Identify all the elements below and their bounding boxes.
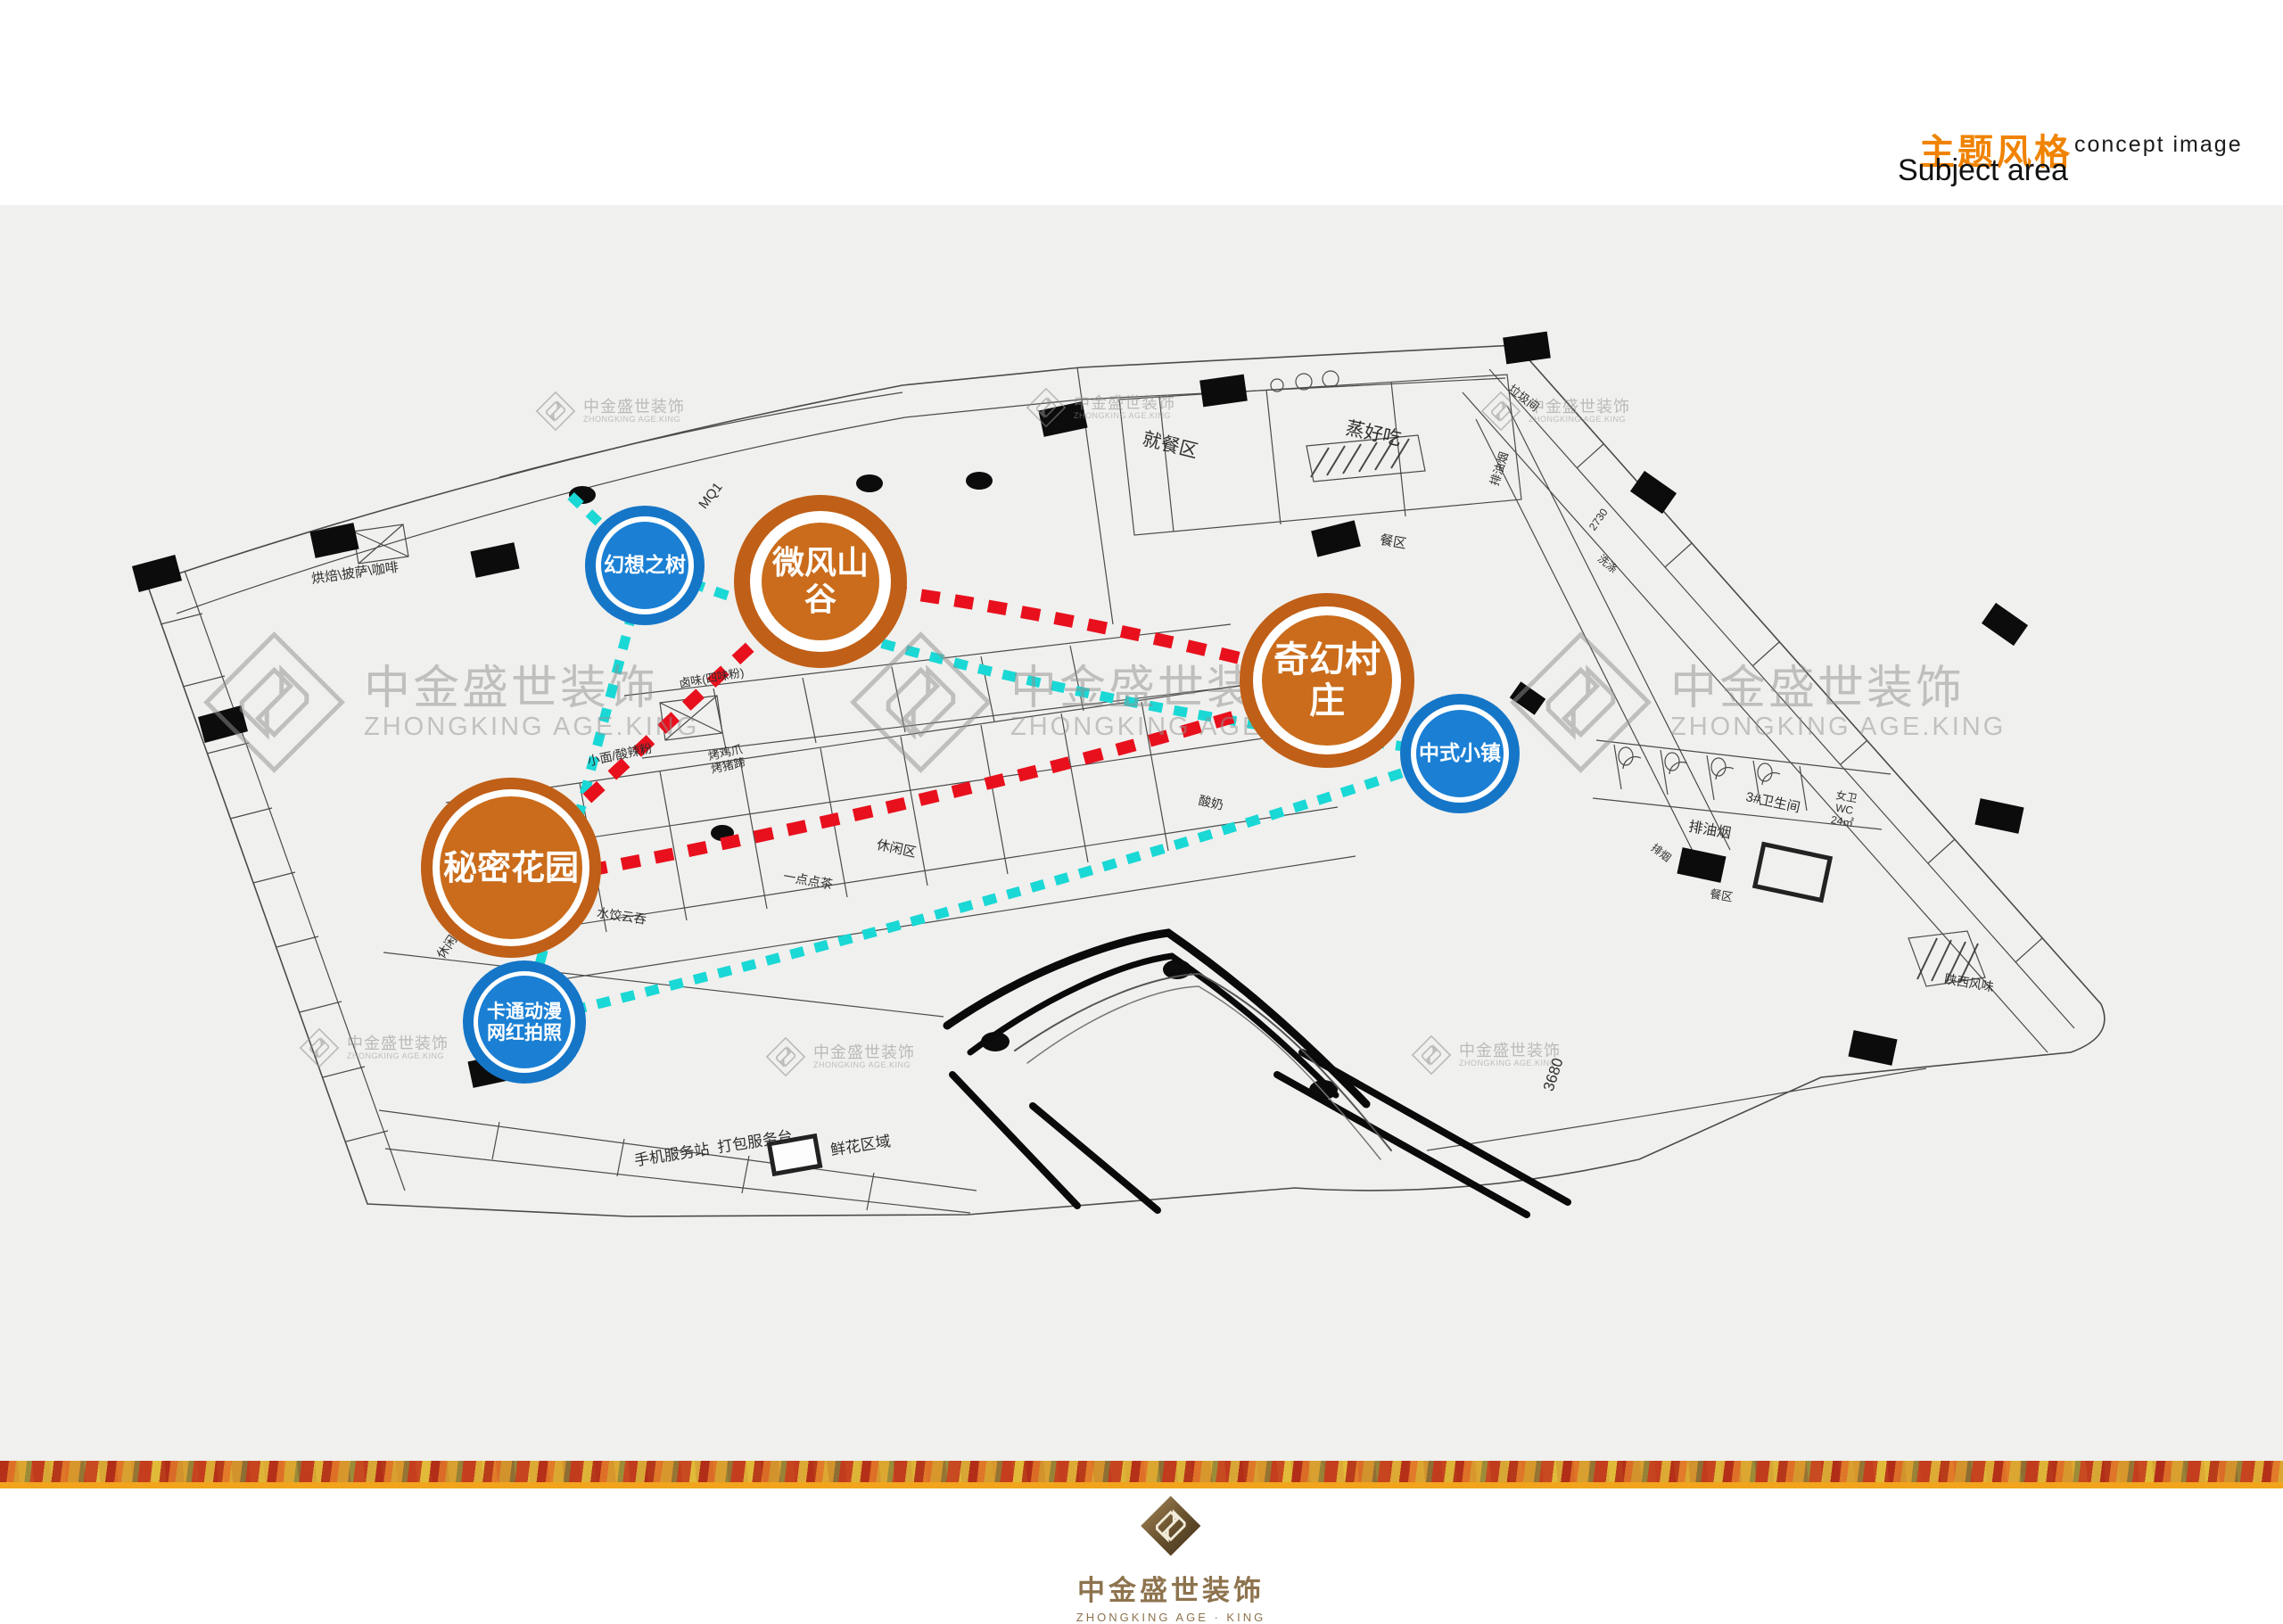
footer-brand-diamond-icon bbox=[1140, 1491, 1202, 1561]
theme-bubble-secret-garden: 秘密花园 bbox=[440, 796, 582, 939]
page-title-en: concept image bbox=[2074, 132, 2243, 158]
theme-bubble-cartoon-photo: 卡通动漫 网红拍照 bbox=[478, 976, 571, 1068]
footer-brand-en: ZHONGKING AGE · KING bbox=[1076, 1611, 1265, 1624]
theme-bubble-fantasy-village: 奇幻村庄 bbox=[1262, 615, 1392, 746]
theme-bubble-breeze-valley: 微风山谷 bbox=[762, 523, 879, 640]
footer-brand: 中金盛世装饰 ZHONGKING AGE · KING bbox=[1076, 1491, 1265, 1624]
theme-bubble-fantasy-tree: 幻想之树 bbox=[601, 522, 688, 609]
stage-background bbox=[0, 205, 2283, 1461]
footer-brand-cn: 中金盛世装饰 bbox=[1077, 1568, 1265, 1608]
decorative-art-strip bbox=[0, 1461, 2283, 1482]
gold-divider-line bbox=[0, 1482, 2283, 1488]
theme-bubble-chinese-town: 中式小镇 bbox=[1416, 710, 1504, 797]
page-subtitle: Subject area bbox=[1898, 153, 2068, 188]
